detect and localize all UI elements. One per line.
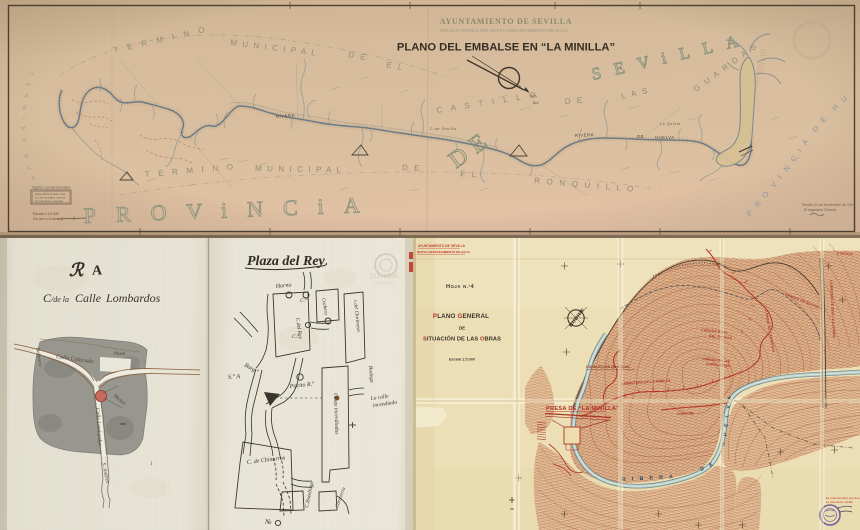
svg-text:1: 1: [150, 462, 153, 467]
svg-text:Id. caminos y sendas: Id. caminos y sendas: [35, 199, 64, 203]
svg-text:Escala 1:5.000: Escala 1:5.000: [449, 358, 475, 362]
svg-text:RIVERA: RIVERA: [575, 132, 594, 138]
svg-text:Escala 1:10.000: Escala 1:10.000: [33, 212, 59, 216]
svg-text:Plaza: Plaza: [113, 352, 126, 357]
svg-text:Signos convencionales: Signos convencionales: [32, 186, 71, 190]
svg-text:A: A: [92, 264, 103, 279]
svg-text:HOJA N.º4: HOJA N.º4: [446, 284, 475, 290]
svg-text:AYUNTAMIENTO DE SEVILLA: AYUNTAMIENTO DE SEVILLA: [440, 17, 572, 26]
svg-text:De cero a 5 kms.: De cero a 5 kms.: [33, 217, 60, 221]
svg-text:N.v.: N.v.: [533, 101, 539, 105]
svg-text:Es copia del plano que obra: Es copia del plano que obra: [826, 496, 860, 500]
svg-text:AYUNTAMIENTO DE SEVILLA: AYUNTAMIENTO DE SEVILLA: [418, 244, 466, 248]
svg-text:S.º A: S.º A: [228, 373, 241, 381]
svg-text:CONDUCCION DE AGUAS: CONDUCCION DE AGUAS: [586, 365, 630, 369]
svg-text:PLANO DEL EMBALSE EN “LA MINIL: PLANO DEL EMBALSE EN “LA MINILLA”: [397, 42, 615, 54]
svg-text:C.de Sevilla: C.de Sevilla: [430, 127, 456, 131]
svg-text:PRESA DE “LA MINILLA”: PRESA DE “LA MINILLA”: [546, 406, 619, 412]
svg-text:C.ª: C.ª: [300, 298, 307, 304]
svg-text:Sevilla 20 de Noviembre de 190: Sevilla 20 de Noviembre de 1901: [802, 203, 855, 207]
svg-text:HUELVA: HUELVA: [655, 135, 675, 140]
svg-text:ℛ: ℛ: [69, 260, 85, 280]
svg-text:La Quinta: La Quinta: [660, 122, 681, 126]
svg-text:El Ingeniero Director: El Ingeniero Director: [804, 208, 838, 212]
svg-text:PLANO GENERAL: PLANO GENERAL: [433, 313, 489, 320]
svg-text:en esta oficina. Sevilla: en esta oficina. Sevilla: [826, 500, 853, 504]
svg-text:D E: D E: [565, 96, 585, 106]
svg-text:DE: DE: [459, 326, 465, 331]
svg-text:SITUACIÓN DE LAS OBRAS: SITUACIÓN DE LAS OBRAS: [423, 335, 501, 343]
svg-text:DE: DE: [637, 134, 644, 139]
svg-text:NUEVO ABASTECIMIENTO DE AGUA: NUEVO ABASTECIMIENTO DE AGUA: [417, 250, 471, 254]
svg-text:C.ª: C.ª: [292, 334, 299, 340]
svg-text:D E: D E: [402, 163, 422, 173]
svg-text:M U N I C I P A L: M U N I C I P A L: [255, 164, 343, 175]
svg-text:№: №: [264, 518, 272, 526]
svg-text:a Magdalena: a Magdalena: [372, 280, 393, 285]
svg-text:OFICINA TECNICA DEL NUEVO ABAS: OFICINA TECNICA DEL NUEVO ABASTECIMIENTO…: [440, 28, 569, 33]
